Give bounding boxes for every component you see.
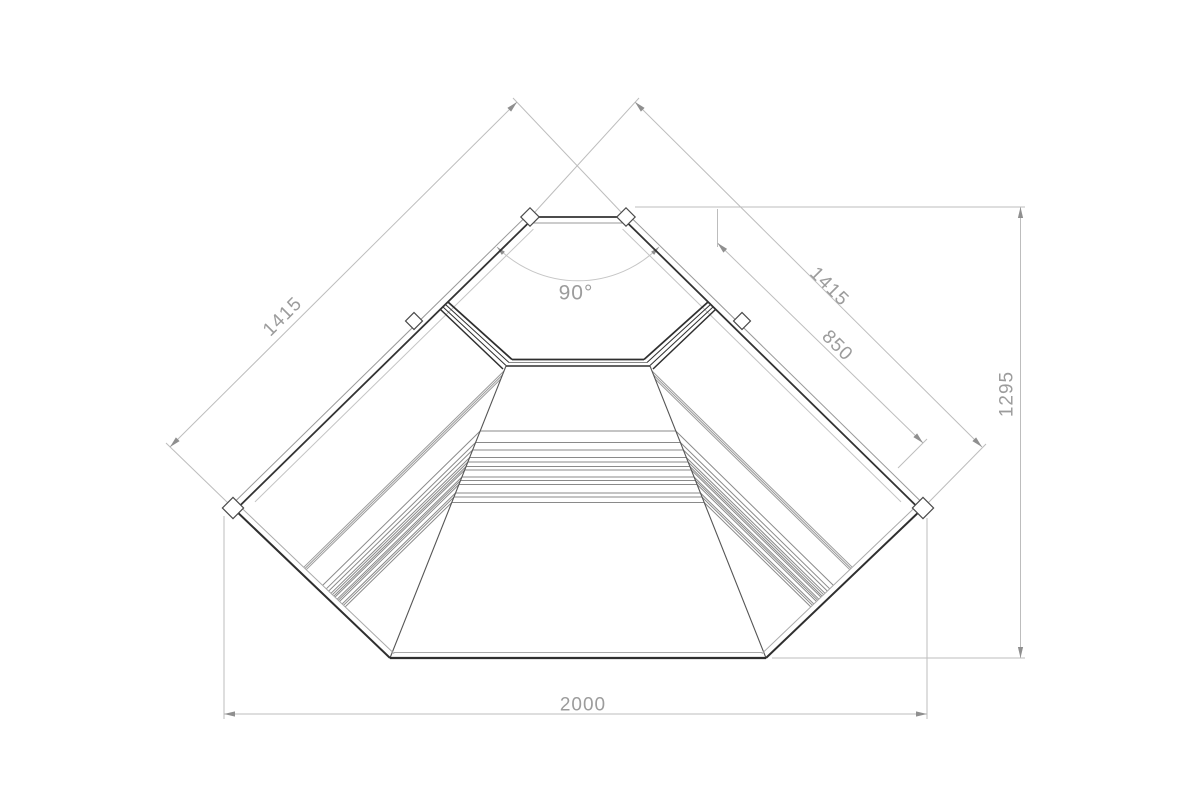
deck-back-line — [306, 379, 501, 570]
post-mid-left — [406, 313, 423, 330]
mitre-line — [650, 366, 766, 658]
deck-step-line — [335, 470, 821, 597]
dim-label-front-width: 2000 — [560, 695, 606, 716]
dim-label-side-depth: 1295 — [997, 371, 1018, 417]
back-panel-hatch-line — [446, 305, 510, 363]
dim-label-right-arm: 1415 — [805, 263, 853, 311]
mitre-line — [390, 366, 506, 658]
back-panel-hatch-line — [650, 307, 713, 366]
angle-label-90: 90° — [559, 281, 594, 304]
deck-step-line — [332, 462, 823, 595]
inner-wall-faint-line — [623, 229, 901, 502]
inner-wall-faint-line — [255, 229, 533, 502]
extension-line — [928, 444, 986, 503]
back-panel-hatch-line — [644, 302, 708, 360]
deck-step-line — [331, 458, 825, 594]
dimension-labels: 1415 1415 850 1295 2000 90° — [259, 263, 1018, 716]
dim-label-right-inner: 850 — [817, 326, 856, 365]
back-panel-hatch-line — [441, 310, 504, 370]
dim-label-left-arm: 1415 — [259, 293, 307, 341]
deck-back-line — [655, 379, 850, 570]
deck-step-line — [326, 443, 829, 589]
deck-step-line — [344, 497, 813, 605]
corner-counter-technical-drawing: 1415 1415 850 1295 2000 90° — [0, 0, 1200, 800]
back-panel-hatch-line — [647, 305, 711, 363]
arrowhead — [916, 711, 927, 716]
back-panel-hatch-line — [653, 310, 716, 370]
back-panel-hatch-line — [448, 302, 512, 360]
arrowhead — [224, 711, 235, 716]
deck-step-line — [323, 431, 834, 585]
arrowhead — [1018, 207, 1023, 218]
extension-line — [535, 98, 639, 212]
deck-step-line — [329, 450, 828, 591]
post-mid-right — [734, 313, 751, 330]
extension-line — [513, 98, 621, 212]
deck-step-line — [342, 493, 814, 604]
back-panel-hatch-line — [443, 307, 506, 366]
extension-line — [166, 443, 228, 503]
arrowhead — [1018, 647, 1023, 658]
drawing-page: 1415 1415 850 1295 2000 90° — [0, 0, 1200, 800]
angle-arc — [497, 247, 659, 281]
dimension-linework — [166, 98, 1025, 719]
